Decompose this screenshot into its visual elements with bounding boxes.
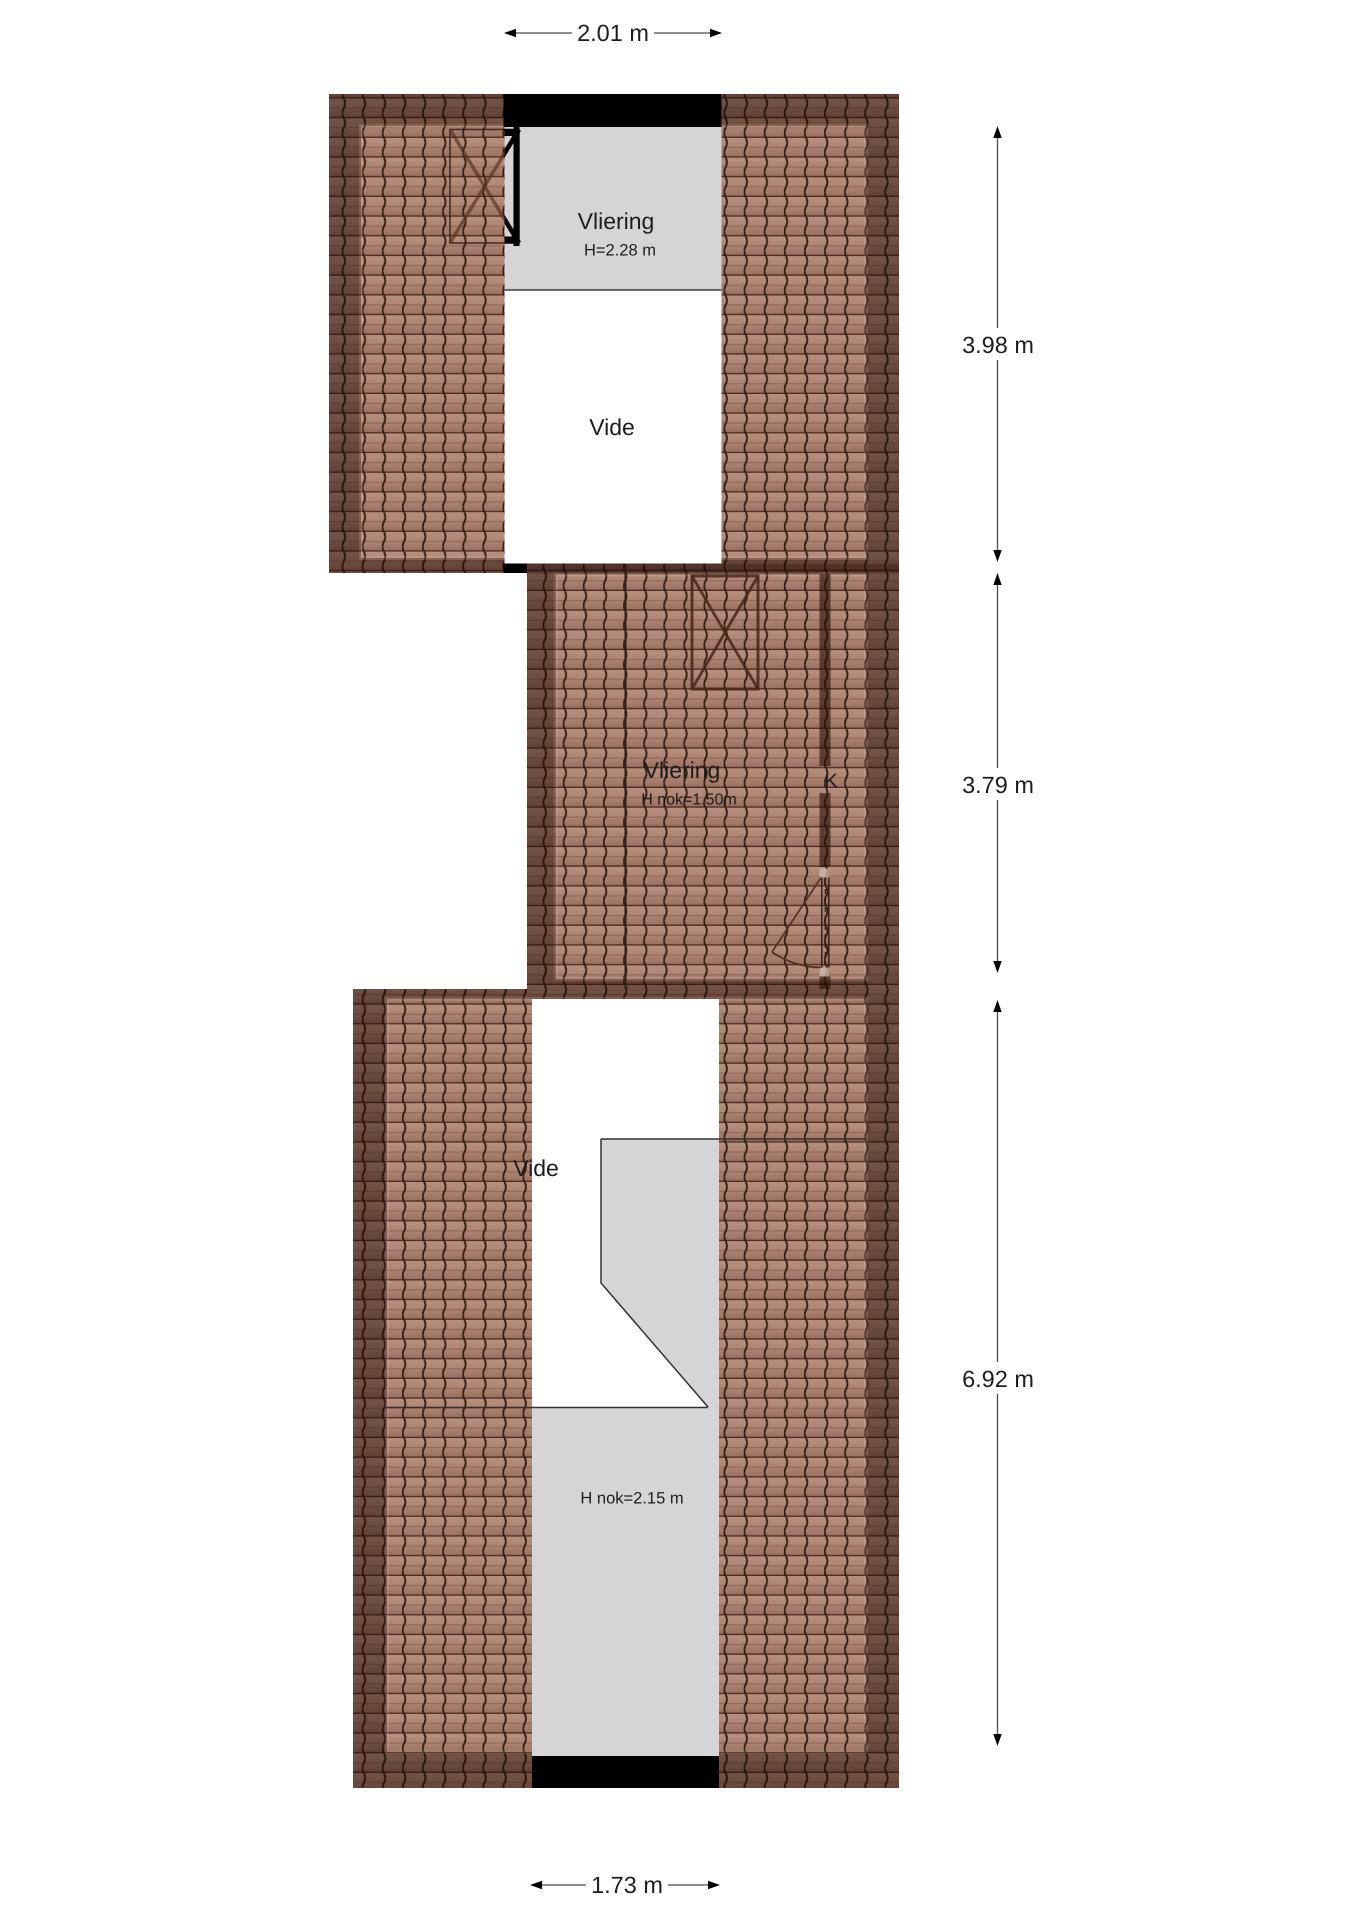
svg-text:H nok=1.50m: H nok=1.50m [641,791,737,808]
svg-text:Vide: Vide [589,414,635,440]
svg-text:6.92 m: 6.92 m [962,1366,1034,1392]
svg-text:2.01 m: 2.01 m [577,20,649,46]
svg-text:K: K [824,770,838,792]
svg-text:Vliering: Vliering [578,208,655,234]
svg-text:Vliering: Vliering [644,757,721,783]
svg-text:Vide: Vide [513,1155,559,1181]
svg-text:3.79 m: 3.79 m [962,772,1034,798]
svg-text:H=2.28 m: H=2.28 m [584,241,656,259]
svg-text:H nok=2.15 m: H nok=2.15 m [580,1489,683,1507]
svg-text:1.73 m: 1.73 m [591,1872,663,1898]
svg-text:3.98 m: 3.98 m [962,332,1034,358]
